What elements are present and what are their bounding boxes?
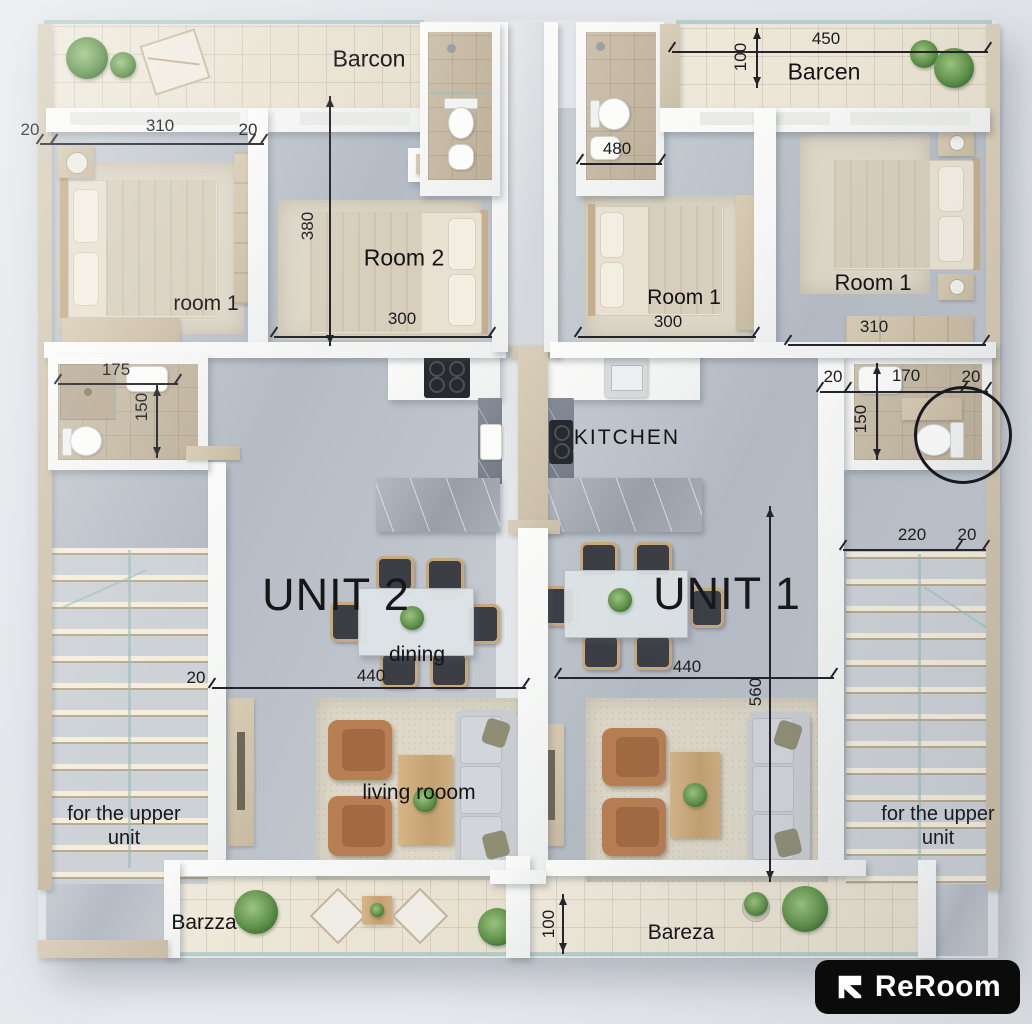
dimension-line: [769, 506, 771, 882]
balcony-glass-bottom-right: [528, 952, 920, 956]
dimension-label: 310: [146, 116, 174, 136]
kitchen-island-unit2: [376, 478, 500, 532]
dimension-label: 20: [239, 120, 258, 140]
sofa-unit1: [748, 712, 810, 864]
label-barcen: Barcen: [788, 59, 861, 86]
sink-icon: [126, 366, 168, 392]
label-room1-mid: Room 1: [647, 286, 721, 310]
dimension-label: 560: [746, 678, 766, 706]
label-upper-unit-right: for the upper unit: [872, 802, 1004, 850]
dimension-label: 20: [21, 120, 40, 140]
armchair: [328, 720, 392, 780]
label-unit1: UNIT 1: [653, 568, 801, 620]
toilet-icon: [598, 98, 630, 130]
dimension-line: [40, 143, 264, 145]
kitchen-sink-unit2: [480, 424, 502, 460]
label-living-room: living rooom: [362, 781, 475, 805]
dimension-label: 380: [298, 212, 318, 240]
dimension-line: [876, 363, 878, 460]
dimension-label: 300: [654, 312, 682, 332]
bed-pillow: [600, 262, 624, 308]
armchair: [328, 796, 392, 856]
toilet-highlight-circle: [914, 386, 1012, 484]
balcony-bareza: [528, 874, 920, 956]
cooktop-unit2: [424, 356, 470, 398]
hall-console: [186, 446, 240, 460]
label-room2: Room 2: [364, 245, 445, 272]
bed-pillow: [448, 274, 476, 326]
dimension-line: [274, 336, 492, 338]
wall: [490, 870, 546, 884]
reroom-logo: ReRoom: [815, 960, 1020, 1014]
wall: [660, 24, 680, 116]
nightstand: [938, 130, 974, 156]
dimension-line: [756, 28, 758, 88]
dimension-label: 150: [851, 405, 871, 433]
dimension-label: 440: [357, 666, 385, 686]
nightstand: [938, 274, 974, 300]
balcony-plant: [66, 37, 108, 79]
bed-pillow: [73, 252, 99, 306]
dimension-line: [672, 51, 988, 53]
wall: [38, 940, 168, 958]
balcony-plant: [782, 886, 828, 932]
armchair: [602, 798, 666, 856]
bed-pillow: [73, 189, 99, 243]
dimension-label: 220: [898, 525, 926, 545]
kitchen-pillar: [518, 346, 548, 534]
label-dining: dining: [389, 643, 445, 667]
dimension-label: 20: [187, 668, 206, 688]
label-room1-left: room 1: [173, 292, 238, 316]
label-bareza: Bareza: [648, 921, 715, 945]
wall: [918, 860, 936, 958]
bed-headboard: [588, 204, 595, 316]
toilet-icon: [70, 426, 102, 456]
armchair: [602, 728, 666, 786]
dimension-label: 20: [962, 367, 981, 387]
wall: [208, 462, 226, 868]
bidet-icon: [448, 144, 474, 170]
bed-pillow: [448, 218, 476, 270]
bed-pillow: [938, 166, 964, 212]
dimension-label: 170: [892, 366, 920, 386]
toilet-icon: [448, 107, 474, 139]
window-sill: [850, 112, 970, 125]
ac-unit: [58, 146, 94, 178]
dimension-line: [788, 344, 986, 346]
dining-plant-unit1: [608, 588, 632, 612]
floor-plan: 20 310 20 380 300 450 100 480 300 310 17…: [0, 0, 1032, 1024]
shower-head: [596, 42, 605, 51]
dimension-label: 440: [673, 657, 701, 677]
kitchen-counter-bottom-unit1: [546, 478, 702, 532]
dimension-label: 20: [958, 525, 977, 545]
reroom-logo-icon: [834, 972, 864, 1002]
bed-pillow: [938, 216, 964, 262]
dimension-label: 175: [102, 360, 130, 380]
balcony-table-plant: [370, 903, 384, 917]
balcony-plant: [934, 48, 974, 88]
dimension-line: [562, 894, 564, 954]
dimension-line: [843, 549, 986, 551]
bed-pillow: [600, 212, 624, 258]
label-upper-unit-left: for the upper unit: [58, 802, 190, 850]
room1-right-bed: [834, 158, 980, 270]
bed-headboard: [60, 178, 68, 318]
dining-chair: [582, 634, 620, 670]
label-unit2: UNIT 2: [262, 569, 410, 621]
wall: [518, 528, 548, 874]
dining-chair: [634, 634, 672, 670]
balcony-glass-top-left: [44, 20, 424, 24]
dimension-label: 480: [603, 139, 631, 159]
dimension-line: [580, 163, 662, 165]
dimension-line: [156, 385, 158, 458]
dimension-label: 300: [388, 309, 416, 329]
reroom-logo-text: ReRoom: [875, 970, 1001, 1004]
middle-gap-wall-face: [508, 22, 544, 352]
dimension-line: [212, 687, 526, 689]
wardrobe-room1-mid: [736, 195, 754, 330]
dimension-label: 100: [731, 43, 751, 71]
dresser-room1-left: [62, 318, 180, 344]
label-barcon: Barcon: [333, 46, 406, 73]
balcony-plant: [744, 892, 768, 916]
wall: [754, 108, 776, 348]
wall: [546, 860, 866, 876]
balcony-glass-top-right: [676, 20, 992, 24]
dimension-label: 450: [812, 29, 840, 49]
shower-head: [447, 44, 456, 53]
shower-glass: [428, 92, 492, 94]
dimension-line: [329, 96, 331, 346]
label-room1-right: Room 1: [834, 270, 911, 296]
wall: [178, 860, 522, 876]
tv-console-unit2: [228, 698, 254, 846]
dimension-line: [558, 677, 834, 679]
label-barzza: Barzza: [171, 911, 236, 935]
wall: [544, 22, 558, 352]
dimension-label: 20: [824, 367, 843, 387]
dimension-label: 100: [539, 910, 559, 938]
balcony-plant: [110, 52, 136, 78]
dimension-label: 310: [860, 317, 888, 337]
label-kitchen: KITCHEN: [574, 426, 680, 450]
balcony-plant: [234, 890, 278, 934]
wall: [818, 354, 844, 868]
cooktop-unit1: [549, 420, 573, 464]
balcony-glass-bottom-left: [178, 952, 508, 956]
kitchen-sink-unit1: [604, 356, 648, 398]
dimension-label: 150: [132, 393, 152, 421]
dimension-line: [578, 336, 756, 338]
bed-blanket: [834, 160, 930, 268]
coffee-table-plant: [683, 783, 707, 807]
window-sill: [300, 112, 410, 125]
